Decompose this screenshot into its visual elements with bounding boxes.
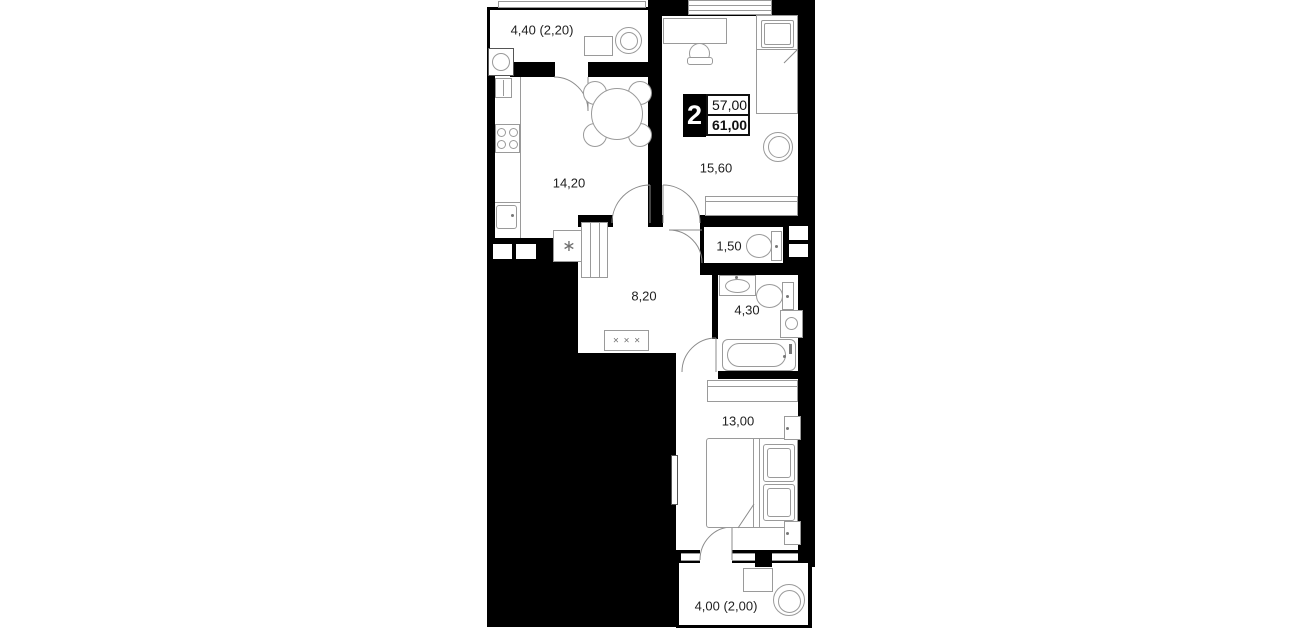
room-area-label-living: 15,60 — [700, 161, 733, 176]
badge-rooms-count: 2 — [683, 94, 706, 137]
wardrobe-line — [590, 222, 591, 278]
wall — [676, 563, 679, 627]
room-area-label-bathroom: 4,30 — [734, 303, 759, 318]
kitchen-cabinet — [516, 244, 536, 259]
nightstand-knob — [786, 427, 789, 430]
room-area-label-hallway: 8,20 — [631, 289, 656, 304]
blanket-fold — [738, 504, 754, 528]
stove-burner — [497, 128, 506, 137]
kitchen-sink-faucet — [511, 214, 514, 217]
floor-plan: ∗ × × × 4,40 (2,20) — [0, 0, 1301, 630]
nightstand-knob — [786, 532, 789, 535]
kitchen-counter — [520, 77, 521, 238]
door-arc — [669, 230, 702, 263]
wall — [718, 371, 798, 379]
stove-burner — [509, 140, 518, 149]
room-area-label-bedroom: 13,00 — [722, 414, 755, 429]
wardrobe-line — [707, 386, 798, 387]
door-arc — [612, 185, 650, 223]
wall — [487, 72, 495, 262]
wardrobe — [581, 222, 608, 278]
window — [498, 1, 646, 8]
wall — [588, 62, 648, 77]
door-arc — [663, 185, 700, 223]
toilet-button — [786, 295, 789, 298]
door-arc — [682, 338, 716, 372]
armchair-seat — [768, 136, 790, 158]
room-area-label-balcony-bottom: 4,00 (2,00) — [695, 599, 758, 614]
desk — [663, 18, 727, 44]
kitchen-counter-line — [495, 202, 520, 203]
wall — [510, 62, 555, 77]
window — [732, 553, 755, 561]
toilet-bowl — [756, 284, 783, 308]
wall — [712, 275, 718, 339]
wardrobe-line — [599, 222, 600, 278]
stove-burner — [497, 140, 506, 149]
bathtub-faucet — [789, 344, 792, 354]
ventilation-shaft — [789, 244, 808, 257]
wall — [808, 563, 812, 628]
balcony-table — [743, 568, 773, 592]
badge-area-bottom: 61,00 — [706, 114, 750, 136]
window — [772, 553, 798, 561]
window — [681, 553, 700, 561]
door-arc — [700, 527, 732, 560]
apartment-badge: 2 57,00 61,00 — [683, 94, 750, 137]
fridge-symbol: ∗ — [562, 236, 575, 256]
balcony-chair-seat — [778, 590, 801, 613]
stove-burner — [509, 128, 518, 137]
wall — [755, 550, 772, 567]
kitchen-appliance-line — [503, 80, 504, 96]
pillow-inner — [767, 448, 791, 478]
washing-machine-drum — [785, 317, 798, 330]
sink-faucet — [735, 276, 738, 279]
wall — [700, 263, 815, 275]
badge-area-top: 57,00 — [706, 94, 750, 116]
window-line — [688, 5, 772, 6]
wardrobe — [707, 380, 798, 402]
kitchen-sink — [496, 205, 517, 229]
window-line — [688, 10, 772, 11]
blanket-fold — [784, 49, 798, 63]
wall — [676, 625, 812, 628]
bed-line — [759, 438, 760, 528]
bathtub-basin — [727, 343, 786, 367]
washing-machine-drum — [492, 53, 510, 71]
room-area-label-kitchen: 14,20 — [553, 176, 586, 191]
room-area-label-wc: 1,50 — [716, 239, 741, 254]
dresser — [705, 196, 798, 216]
dresser-line — [705, 201, 798, 202]
coat-rack-hooks: × × × — [613, 336, 641, 347]
ventilation-shaft — [789, 226, 808, 240]
balcony-chair-seat — [620, 32, 638, 50]
bathtub-drain — [783, 355, 786, 358]
toilet-bowl — [746, 234, 772, 258]
tv — [671, 455, 678, 505]
pillow-inner — [767, 488, 791, 517]
toilet-button — [775, 245, 778, 248]
dining-table — [591, 88, 643, 140]
pillow-inner — [764, 23, 791, 45]
desk-chair-back — [687, 57, 713, 65]
window — [688, 0, 772, 15]
balcony-table — [584, 36, 613, 56]
room-area-label-balcony-top: 4,40 (2,20) — [511, 23, 574, 38]
sink-basin — [725, 279, 750, 293]
kitchen-cabinet — [493, 244, 512, 259]
